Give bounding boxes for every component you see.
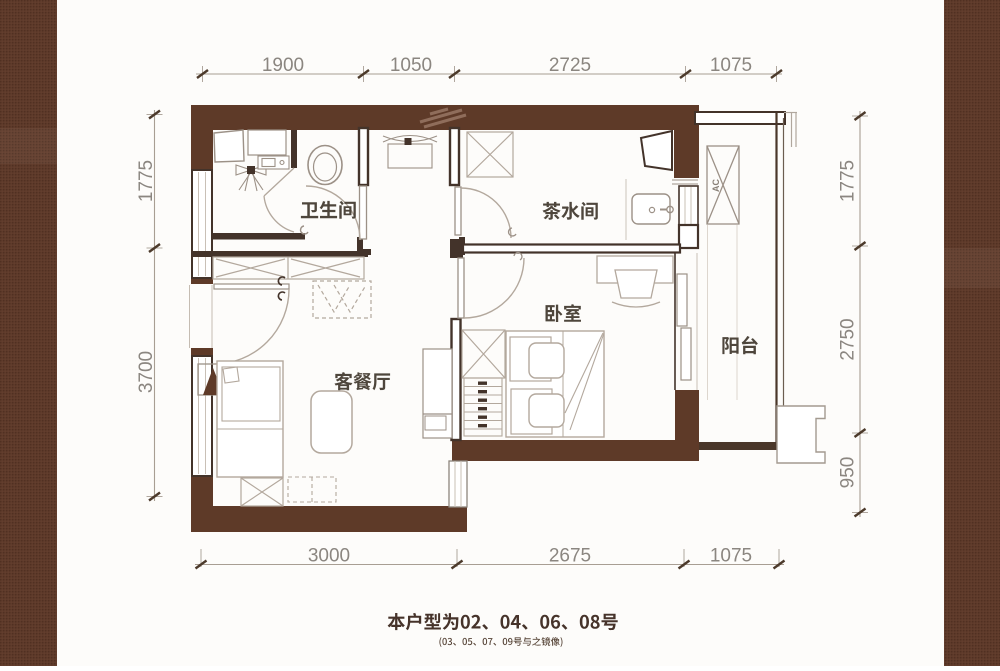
- svg-text:1900: 1900: [262, 55, 304, 76]
- svg-text:3000: 3000: [308, 546, 350, 567]
- svg-text:2675: 2675: [549, 546, 591, 567]
- svg-text:1775: 1775: [838, 160, 859, 202]
- svg-text:AC: AC: [711, 179, 721, 192]
- svg-text:1075: 1075: [710, 55, 752, 76]
- svg-text:1050: 1050: [390, 55, 432, 76]
- svg-text:3700: 3700: [136, 351, 157, 393]
- svg-text:1075: 1075: [710, 546, 752, 567]
- svg-text:950: 950: [838, 457, 859, 489]
- svg-text:1775: 1775: [136, 160, 157, 202]
- svg-text:2725: 2725: [549, 55, 591, 76]
- svg-text:2750: 2750: [838, 318, 859, 360]
